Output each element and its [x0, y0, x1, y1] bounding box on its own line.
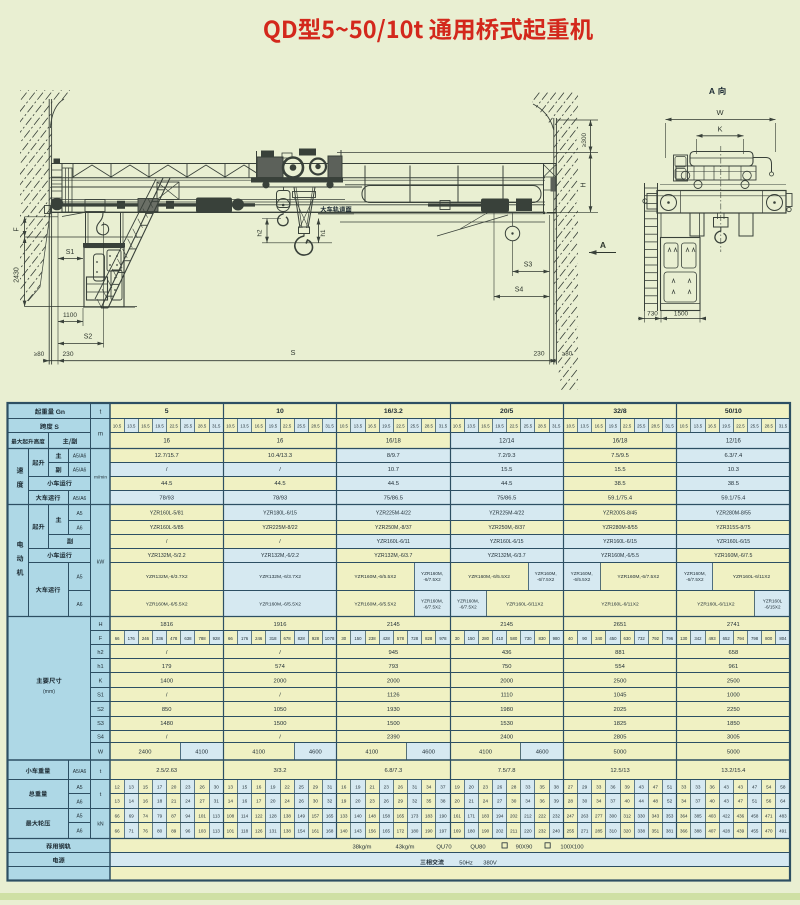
svg-text:S: S — [54, 424, 59, 431]
svg-text:4600: 4600 — [422, 750, 435, 756]
svg-text:202: 202 — [510, 813, 518, 818]
svg-text:-6/7.5X2: -6/7.5X2 — [686, 577, 704, 582]
svg-text:13.5: 13.5 — [127, 423, 136, 428]
svg-text:2000: 2000 — [274, 678, 287, 684]
svg-text:1930: 1930 — [387, 707, 400, 713]
svg-text:31.5: 31.5 — [779, 423, 788, 428]
svg-text:78/93: 78/93 — [273, 496, 288, 502]
svg-text:16.5: 16.5 — [141, 423, 150, 428]
svg-text:YZR160M,-6/5.5X2: YZR160M,-6/5.5X2 — [468, 574, 510, 580]
svg-text:470: 470 — [765, 828, 773, 833]
svg-text:14: 14 — [129, 799, 135, 804]
svg-text:43: 43 — [639, 784, 645, 789]
svg-text:351: 351 — [652, 828, 660, 833]
svg-text:31.5: 31.5 — [439, 423, 448, 428]
svg-text:h2: h2 — [97, 650, 103, 656]
svg-text:58: 58 — [780, 784, 786, 789]
svg-text:38: 38 — [440, 799, 446, 804]
svg-text:10.5: 10.5 — [453, 423, 462, 428]
svg-text:2500: 2500 — [727, 678, 740, 684]
svg-text:10: 10 — [276, 408, 284, 415]
svg-text:130: 130 — [680, 636, 688, 641]
svg-text:19.5: 19.5 — [495, 423, 504, 428]
svg-text:K: K — [99, 678, 103, 684]
svg-text:8/9.7: 8/9.7 — [387, 453, 400, 459]
svg-text:≥300: ≥300 — [581, 132, 588, 147]
svg-text:980: 980 — [553, 636, 561, 641]
svg-text:638: 638 — [184, 636, 192, 641]
svg-text:YZR315S-8/75: YZR315S-8/75 — [716, 525, 750, 531]
svg-text:277: 277 — [595, 813, 603, 818]
svg-text:7.2/9.3: 7.2/9.3 — [498, 453, 516, 459]
svg-text:792: 792 — [652, 636, 660, 641]
svg-text:YZR250M,-8/37: YZR250M,-8/37 — [375, 525, 412, 531]
svg-text:-6/7.5X2: -6/7.5X2 — [459, 605, 477, 610]
svg-text:22.5: 22.5 — [396, 423, 405, 428]
svg-text:118: 118 — [241, 828, 249, 833]
svg-text:31: 31 — [412, 784, 418, 789]
svg-text:20: 20 — [454, 799, 460, 804]
svg-text:263: 263 — [581, 813, 589, 818]
svg-text:5000: 5000 — [614, 750, 627, 756]
svg-text:30: 30 — [511, 799, 517, 804]
svg-text:183: 183 — [482, 813, 490, 818]
svg-text:1100: 1100 — [63, 312, 77, 319]
svg-text:12.7/15.7: 12.7/15.7 — [155, 453, 179, 459]
svg-text:285: 285 — [595, 828, 603, 833]
svg-text:652: 652 — [723, 636, 731, 641]
svg-text:1850: 1850 — [727, 721, 740, 727]
svg-text:246: 246 — [142, 636, 150, 641]
svg-text:A5: A5 — [76, 575, 82, 581]
svg-text:78/93: 78/93 — [159, 496, 174, 502]
svg-text:238: 238 — [369, 636, 377, 641]
svg-text:122: 122 — [255, 813, 263, 818]
svg-text:37: 37 — [440, 784, 446, 789]
svg-text:330: 330 — [637, 813, 645, 818]
svg-text:A5: A5 — [76, 785, 82, 791]
svg-text:S: S — [290, 348, 295, 357]
svg-text:16: 16 — [242, 799, 248, 804]
svg-text:kN: kN — [97, 822, 104, 828]
svg-text:31.5: 31.5 — [665, 423, 674, 428]
svg-text:23: 23 — [369, 799, 375, 804]
svg-text:44.5: 44.5 — [274, 481, 285, 487]
svg-text:13.2/15.4: 13.2/15.4 — [721, 768, 746, 774]
svg-text:101: 101 — [198, 813, 206, 818]
svg-text:87: 87 — [171, 813, 177, 818]
svg-text:176: 176 — [241, 636, 249, 641]
svg-text:2000: 2000 — [387, 678, 400, 684]
svg-text:59.1/75.4: 59.1/75.4 — [608, 496, 633, 502]
svg-text:794: 794 — [737, 636, 745, 641]
svg-text:(mm): (mm) — [43, 689, 55, 695]
svg-text:10.4/13.3: 10.4/13.3 — [268, 453, 292, 459]
svg-text:YZR160M,: YZR160M, — [684, 571, 706, 576]
svg-text:38: 38 — [554, 784, 560, 789]
svg-text:10.5: 10.5 — [340, 423, 349, 428]
svg-text:35: 35 — [539, 784, 545, 789]
svg-text:30: 30 — [313, 799, 319, 804]
svg-text:165: 165 — [326, 813, 334, 818]
svg-text:S1: S1 — [97, 693, 104, 699]
svg-text:101: 101 — [227, 828, 235, 833]
svg-text:4600: 4600 — [309, 750, 322, 756]
svg-text:2500: 2500 — [614, 678, 627, 684]
svg-text:34: 34 — [596, 799, 602, 804]
svg-text:20: 20 — [355, 799, 361, 804]
svg-text:34: 34 — [525, 799, 531, 804]
svg-text:64: 64 — [780, 799, 786, 804]
svg-text:3/3.2: 3/3.2 — [274, 768, 287, 774]
svg-text:422: 422 — [722, 813, 730, 818]
svg-text:300: 300 — [609, 813, 617, 818]
svg-text:10.7: 10.7 — [388, 467, 399, 473]
svg-text:YZR160L-6/11X2: YZR160L-6/11X2 — [697, 602, 735, 608]
svg-text:197: 197 — [439, 828, 447, 833]
svg-text:A5: A5 — [76, 511, 82, 517]
svg-text:455: 455 — [751, 828, 759, 833]
svg-text:230: 230 — [62, 351, 73, 358]
svg-text:850: 850 — [162, 707, 172, 713]
svg-text:15: 15 — [143, 784, 149, 789]
svg-text:YZR160M,-6/5.5: YZR160M,-6/5.5 — [601, 553, 639, 559]
svg-text:10.5: 10.5 — [566, 423, 575, 428]
svg-text:13.5: 13.5 — [240, 423, 249, 428]
svg-text:19.5: 19.5 — [722, 423, 731, 428]
svg-text:39: 39 — [554, 799, 560, 804]
svg-text:22.5: 22.5 — [510, 423, 519, 428]
svg-text:150: 150 — [354, 636, 362, 641]
svg-text:S2: S2 — [97, 707, 104, 713]
svg-text:928: 928 — [213, 636, 221, 641]
svg-text:113: 113 — [213, 828, 221, 833]
svg-text:4100: 4100 — [479, 750, 492, 756]
svg-text:50Hz: 50Hz — [459, 860, 473, 866]
svg-text:33: 33 — [695, 784, 701, 789]
svg-text:19.5: 19.5 — [155, 423, 164, 428]
svg-text:YZR180L-6/15: YZR180L-6/15 — [263, 511, 297, 517]
svg-text:54: 54 — [766, 784, 772, 789]
svg-text:340: 340 — [595, 636, 603, 641]
svg-text:20: 20 — [469, 784, 475, 789]
svg-text:YZR160M,-6/5.5X2: YZR160M,-6/5.5X2 — [354, 574, 396, 580]
svg-text:≥80: ≥80 — [562, 351, 573, 358]
svg-text:25.5: 25.5 — [637, 423, 646, 428]
svg-text:161: 161 — [453, 813, 461, 818]
svg-text:1400: 1400 — [160, 678, 173, 684]
svg-text:2250: 2250 — [727, 707, 740, 713]
svg-text:26: 26 — [497, 784, 503, 789]
svg-text:22.5: 22.5 — [283, 423, 292, 428]
svg-text:A6: A6 — [76, 602, 82, 608]
svg-text:16: 16 — [341, 784, 347, 789]
svg-text:K: K — [717, 125, 722, 134]
svg-text:34: 34 — [681, 799, 687, 804]
svg-text:428: 428 — [383, 636, 391, 641]
svg-text:2000: 2000 — [500, 678, 513, 684]
svg-text:13: 13 — [114, 799, 120, 804]
svg-text:31: 31 — [327, 784, 333, 789]
svg-text:YZR160L-5/81: YZR160L-5/81 — [150, 511, 184, 517]
svg-text:483: 483 — [779, 813, 787, 818]
svg-text:30: 30 — [582, 799, 588, 804]
svg-text:36: 36 — [539, 799, 545, 804]
svg-text:36: 36 — [610, 784, 616, 789]
svg-text:44.5: 44.5 — [501, 481, 512, 487]
svg-text:15.5: 15.5 — [614, 467, 625, 473]
svg-text:F: F — [14, 227, 21, 231]
svg-text:156: 156 — [368, 828, 376, 833]
svg-text:-6/15X2: -6/15X2 — [764, 605, 781, 610]
svg-text:22.5: 22.5 — [623, 423, 632, 428]
svg-text:158: 158 — [382, 813, 390, 818]
svg-text:15: 15 — [242, 784, 248, 789]
svg-text:232: 232 — [552, 813, 560, 818]
svg-text:27: 27 — [497, 799, 503, 804]
svg-text:YZR225M-8/22: YZR225M-8/22 — [262, 525, 297, 531]
svg-text:1110: 1110 — [501, 693, 513, 699]
svg-text:19.5: 19.5 — [609, 423, 618, 428]
svg-text:YZR160L-6/15: YZR160L-6/15 — [716, 539, 750, 545]
svg-text:A5/A6: A5/A6 — [73, 453, 87, 459]
svg-text:19: 19 — [341, 799, 347, 804]
svg-text:169: 169 — [453, 828, 461, 833]
svg-text:246: 246 — [255, 636, 263, 641]
svg-text:71: 71 — [129, 828, 135, 833]
svg-text:12: 12 — [114, 784, 120, 789]
svg-text:-6/7.5X2: -6/7.5X2 — [423, 605, 441, 610]
svg-text:353: 353 — [666, 813, 674, 818]
svg-text:13.5: 13.5 — [580, 423, 589, 428]
svg-text:114: 114 — [241, 813, 249, 818]
svg-text:678: 678 — [283, 636, 291, 641]
svg-text:131: 131 — [269, 828, 277, 833]
svg-text:16: 16 — [256, 784, 262, 789]
svg-text:33: 33 — [525, 784, 531, 789]
svg-text:24: 24 — [284, 799, 290, 804]
svg-text:4600: 4600 — [536, 750, 549, 756]
svg-text:22.5: 22.5 — [736, 423, 745, 428]
svg-text:24: 24 — [185, 799, 191, 804]
svg-text:2145: 2145 — [500, 622, 513, 628]
svg-text:4100: 4100 — [195, 750, 208, 756]
svg-text:732: 732 — [638, 636, 646, 641]
svg-text:2025: 2025 — [614, 707, 627, 713]
svg-text:29: 29 — [398, 799, 404, 804]
svg-text:S3: S3 — [97, 721, 104, 727]
svg-text:YZR160L: YZR160L — [763, 599, 783, 604]
svg-text:28.5: 28.5 — [765, 423, 774, 428]
svg-text:38.5: 38.5 — [614, 481, 625, 487]
svg-text:-6/7.5X2: -6/7.5X2 — [423, 577, 441, 582]
svg-text:20: 20 — [270, 799, 276, 804]
svg-text:493: 493 — [709, 636, 717, 641]
svg-text:38.5: 38.5 — [728, 481, 739, 487]
svg-text:230: 230 — [533, 351, 544, 358]
svg-text:171: 171 — [467, 813, 475, 818]
svg-text:3005: 3005 — [727, 734, 740, 740]
svg-text:YZR250M,-8/37: YZR250M,-8/37 — [488, 525, 525, 531]
svg-text:33: 33 — [596, 784, 602, 789]
svg-text:458: 458 — [751, 813, 759, 818]
svg-text:2.5/2.63: 2.5/2.63 — [156, 768, 177, 774]
svg-text:1916: 1916 — [274, 622, 287, 628]
svg-text:YZR132M,-6/2.2: YZR132M,-6/2.2 — [261, 553, 299, 559]
svg-text:16.5: 16.5 — [595, 423, 604, 428]
svg-text:12/16: 12/16 — [726, 439, 742, 445]
svg-text:25.5: 25.5 — [524, 423, 533, 428]
svg-text:37: 37 — [610, 799, 616, 804]
svg-text:H: H — [581, 182, 588, 187]
svg-text:12/14: 12/14 — [499, 439, 515, 445]
svg-text:10.5: 10.5 — [226, 423, 235, 428]
svg-text:247: 247 — [567, 813, 575, 818]
svg-text:A5/A6: A5/A6 — [73, 467, 87, 473]
svg-text:33: 33 — [681, 784, 687, 789]
svg-text:19.5: 19.5 — [382, 423, 391, 428]
svg-text:1050: 1050 — [274, 707, 287, 713]
svg-text:S4: S4 — [97, 734, 104, 740]
svg-text:25: 25 — [299, 784, 305, 789]
svg-text:43kg/m: 43kg/m — [395, 844, 414, 850]
svg-text:16.5: 16.5 — [255, 423, 264, 428]
svg-text:m/min: m/min — [94, 475, 107, 481]
svg-text:89: 89 — [171, 828, 177, 833]
svg-text:25.5: 25.5 — [750, 423, 759, 428]
svg-text:13: 13 — [228, 784, 234, 789]
svg-text:YZR160L-5/85: YZR160L-5/85 — [150, 525, 184, 531]
svg-text:320: 320 — [623, 828, 631, 833]
svg-text:YZR160L-6/15: YZR160L-6/15 — [603, 539, 637, 545]
svg-text:5: 5 — [165, 408, 169, 415]
svg-text:56: 56 — [766, 799, 772, 804]
svg-text:16: 16 — [277, 439, 284, 445]
svg-text:24: 24 — [483, 799, 489, 804]
svg-text:S3: S3 — [524, 262, 533, 269]
svg-text:21: 21 — [469, 799, 475, 804]
svg-text:28.5: 28.5 — [311, 423, 320, 428]
svg-text:410: 410 — [496, 636, 504, 641]
svg-text:YZR160M,: YZR160M, — [535, 571, 557, 576]
svg-text:19: 19 — [355, 784, 361, 789]
svg-text:10.5: 10.5 — [680, 423, 689, 428]
svg-text:176: 176 — [128, 636, 136, 641]
svg-text:16: 16 — [143, 799, 149, 804]
svg-text:165: 165 — [397, 813, 405, 818]
svg-text:574: 574 — [275, 664, 285, 670]
svg-text:32: 32 — [327, 799, 333, 804]
svg-text:1045: 1045 — [614, 693, 627, 699]
svg-text:69: 69 — [129, 813, 135, 818]
svg-text:13: 13 — [129, 784, 135, 789]
svg-text:13.5: 13.5 — [354, 423, 363, 428]
svg-text:338: 338 — [637, 828, 645, 833]
svg-text:202: 202 — [496, 828, 504, 833]
svg-text:27: 27 — [568, 784, 574, 789]
svg-text:580: 580 — [510, 636, 518, 641]
svg-text:YZR160L-6/11X2: YZR160L-6/11X2 — [506, 602, 544, 608]
svg-text:16.5: 16.5 — [368, 423, 377, 428]
svg-text:1126: 1126 — [387, 693, 399, 699]
svg-text:310: 310 — [609, 828, 617, 833]
svg-text:19: 19 — [454, 784, 460, 789]
svg-text:211: 211 — [510, 828, 518, 833]
svg-text:436: 436 — [502, 650, 512, 656]
svg-text:26: 26 — [199, 784, 205, 789]
svg-text:A5: A5 — [76, 814, 82, 820]
svg-text:4100: 4100 — [252, 750, 265, 756]
svg-text:312: 312 — [623, 813, 631, 818]
svg-text:220: 220 — [524, 828, 532, 833]
svg-text:103: 103 — [198, 828, 206, 833]
svg-text:47: 47 — [738, 799, 744, 804]
svg-text:138: 138 — [283, 813, 291, 818]
svg-text:388: 388 — [694, 828, 702, 833]
svg-text:10.5: 10.5 — [113, 423, 122, 428]
svg-text:YZR160M,: YZR160M, — [421, 599, 443, 604]
svg-text:28.5: 28.5 — [651, 423, 660, 428]
svg-text:Gn: Gn — [56, 409, 65, 416]
svg-text:1000: 1000 — [727, 693, 740, 699]
svg-text:H: H — [98, 622, 102, 628]
svg-text:20: 20 — [171, 784, 177, 789]
svg-text:126: 126 — [255, 828, 263, 833]
svg-text:450: 450 — [609, 636, 617, 641]
svg-text:16.5: 16.5 — [708, 423, 717, 428]
svg-text:44: 44 — [639, 799, 645, 804]
svg-text:100X100: 100X100 — [560, 844, 583, 850]
svg-text:380V: 380V — [483, 860, 497, 866]
svg-text:28.5: 28.5 — [538, 423, 547, 428]
svg-text:364: 364 — [680, 813, 688, 818]
svg-text:2390: 2390 — [387, 734, 400, 740]
svg-text:20/5: 20/5 — [500, 408, 513, 415]
svg-text:74: 74 — [143, 813, 149, 818]
svg-text:1816: 1816 — [160, 622, 173, 628]
svg-text:35: 35 — [426, 799, 432, 804]
svg-text:143: 143 — [354, 828, 362, 833]
svg-text:S2: S2 — [84, 334, 93, 341]
svg-text:26: 26 — [299, 799, 305, 804]
svg-text:928: 928 — [312, 636, 320, 641]
svg-text:kW: kW — [97, 560, 105, 566]
svg-text:36: 36 — [709, 784, 715, 789]
svg-text:1530: 1530 — [500, 721, 513, 727]
svg-text:A6: A6 — [76, 800, 82, 806]
svg-text:66: 66 — [228, 636, 233, 641]
svg-text:471: 471 — [765, 813, 773, 818]
svg-text:QU80: QU80 — [470, 844, 485, 850]
svg-text:47: 47 — [752, 784, 758, 789]
svg-text:222: 222 — [538, 813, 546, 818]
svg-text:79: 79 — [157, 813, 163, 818]
svg-text:17: 17 — [256, 799, 262, 804]
svg-text:133: 133 — [340, 813, 348, 818]
svg-text:51: 51 — [667, 784, 673, 789]
svg-text:96: 96 — [185, 828, 191, 833]
svg-text:37: 37 — [695, 799, 701, 804]
svg-text:2741: 2741 — [727, 622, 740, 628]
svg-text:YZR132M,-6/3.7: YZR132M,-6/3.7 — [374, 553, 412, 559]
svg-text:157: 157 — [312, 813, 320, 818]
svg-text:75/86.5: 75/86.5 — [497, 496, 516, 502]
svg-text:h1: h1 — [97, 664, 103, 670]
svg-text:828: 828 — [298, 636, 306, 641]
svg-text:A5/A6: A5/A6 — [73, 496, 87, 502]
svg-text:1480: 1480 — [160, 721, 173, 727]
svg-text:YZR160L-6/11X2: YZR160L-6/11X2 — [601, 602, 639, 608]
